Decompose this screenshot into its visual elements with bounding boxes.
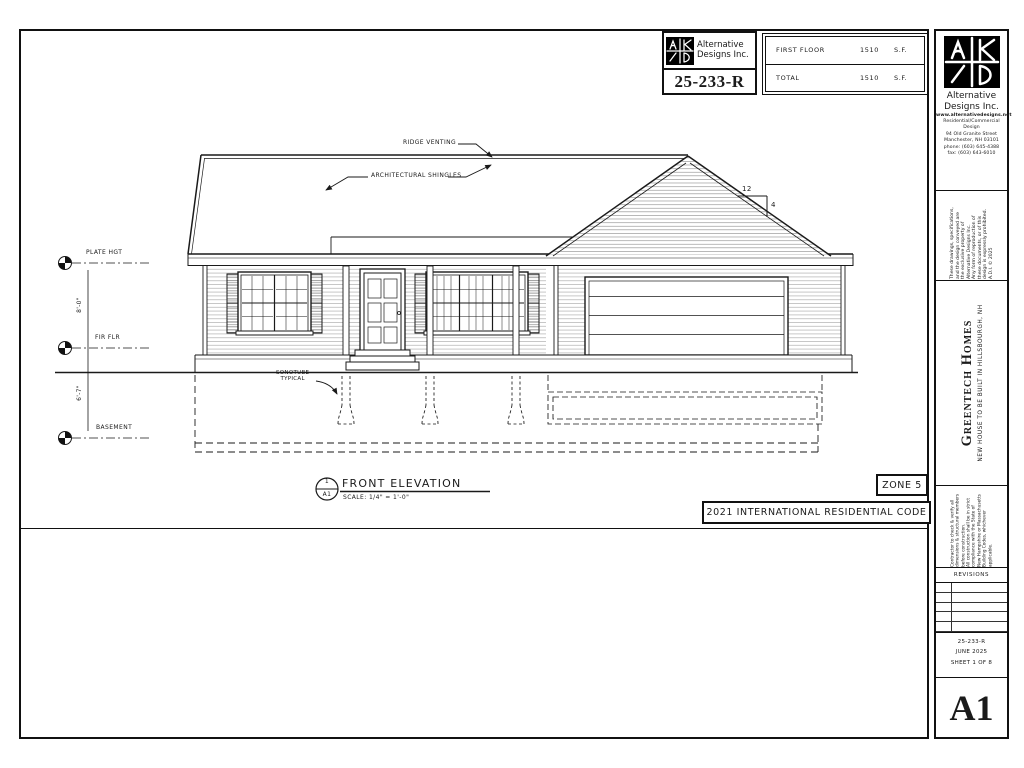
sidebar-firm-name-2: Designs Inc. — [936, 102, 1007, 113]
copyright-line: Alternative Designs Inc. — [966, 193, 972, 279]
area-row-unit: S.F. — [894, 74, 914, 82]
revision-row — [936, 603, 1007, 613]
revisions-table — [936, 583, 1007, 633]
area-row-label: FIRST FLOOR — [776, 46, 860, 54]
title-block-firm: Alternative Designs Inc. 25-233-R — [662, 31, 757, 95]
ridge-venting-label: RIDGE VENTING — [403, 139, 456, 146]
door-steps — [346, 350, 419, 370]
building-code-box: 2021 INTERNATIONAL RESIDENTIAL CODE — [702, 501, 931, 524]
project-description: NEW HOUSE TO BE BUILT IN HILLSBOURGH, NH — [977, 282, 983, 484]
project-identity: Greentech Homes NEW HOUSE TO BE BUILT IN… — [960, 282, 984, 484]
revisions-table-divider — [951, 583, 952, 632]
sidebar-firm-name-1: Alternative — [936, 91, 1007, 102]
sheet-project-number: 25-233-R — [936, 637, 1007, 647]
title-block-firm-name-2: Designs Inc. — [697, 51, 749, 60]
sonotube-label: SONOTUBE TYPICAL — [276, 370, 309, 383]
front-door — [360, 269, 405, 352]
area-table-row-total: TOTAL 1510 S.F. — [766, 65, 924, 92]
area-row-unit: S.F. — [894, 46, 914, 54]
revision-row — [936, 593, 1007, 603]
left-window — [227, 272, 322, 335]
copyright-line: and the design conveyed are — [955, 193, 961, 279]
revision-row — [936, 622, 1007, 632]
contractor-note-line: dimensions & structural members — [955, 487, 960, 567]
area-table-inner: FIRST FLOOR 1510 S.F. TOTAL 1510 S.F. — [765, 36, 925, 92]
foundation-dashed — [195, 375, 822, 452]
drawing-title: FRONT ELEVATION — [342, 477, 461, 490]
architectural-shingles-label: ARCHITECTURAL SHINGLES — [371, 172, 461, 179]
area-table-row-first-floor: FIRST FLOOR 1510 S.F. — [766, 37, 924, 65]
drawing-scale: SCALE: 1/4" = 1'-0" — [343, 494, 409, 501]
dim-floor-to-basement: 6'-7" — [55, 369, 103, 417]
title-block-project-number: 25-233-R — [664, 70, 755, 93]
copyright-line: these documents, or of this — [977, 193, 983, 279]
sidebar-title-strip: Alternative Designs Inc. www.alternative… — [934, 29, 1009, 739]
sidebar-firm-section: Alternative Designs Inc. www.alternative… — [936, 31, 1007, 191]
sidebar-project-section: Greentech Homes NEW HOUSE TO BE BUILT IN… — [936, 281, 1007, 486]
area-table: FIRST FLOOR 1510 S.F. TOTAL 1510 S.F. — [762, 33, 928, 95]
sheet-id: A1 — [936, 678, 1007, 737]
basement-datum-label: BASEMENT — [96, 424, 132, 431]
firm-logo-icon — [944, 36, 1000, 88]
zone-box: ZONE 5 — [876, 474, 928, 496]
contractor-note-text: Contractor to check & verify all dimensi… — [950, 487, 993, 567]
copyright-line: Any form of reproduction of — [972, 193, 978, 279]
title-block-firm-row: Alternative Designs Inc. — [664, 33, 755, 70]
sheet-number-label: SHEET 1 OF 8 — [936, 658, 1007, 668]
slope-run-label: 12 — [742, 185, 752, 193]
plate-height-datum-label: PLATE HGT — [86, 249, 122, 256]
revision-row — [936, 583, 1007, 593]
porch-window — [415, 272, 539, 335]
sidebar-firm-address-2: Manchester, NH 03101 — [936, 138, 1007, 144]
front-elevation-linework — [0, 0, 1024, 768]
revision-row — [936, 612, 1007, 622]
contractor-note-line: New Hampshire or Massachusetts — [977, 487, 982, 567]
dim-plate-to-floor: 8'-0" — [55, 281, 103, 329]
detail-number: 1 — [321, 478, 333, 485]
detail-sheet-ref: A1 — [319, 491, 335, 498]
copyright-line: A.D.I. © 2025 — [988, 193, 994, 279]
area-row-label: TOTAL — [776, 74, 860, 82]
firm-logo-icon — [666, 37, 694, 65]
garage-gable — [546, 156, 831, 256]
contractor-note-line: before construction. — [961, 487, 966, 567]
copyright-line: design is expressly prohibited. — [983, 193, 989, 279]
client-name: Greentech Homes — [960, 282, 976, 484]
area-row-value: 1510 — [860, 46, 894, 54]
first-floor-datum-label: FIR FLR — [95, 334, 120, 341]
copyright-text: These drawings, specifications, and the … — [950, 193, 994, 279]
revisions-header: REVISIONS — [936, 568, 1007, 583]
sidebar-firm-fax: fax: (603) 643-6010 — [936, 151, 1007, 157]
area-row-value: 1510 — [860, 74, 894, 82]
contractor-note-line: Building Codes, whichever applicable. — [982, 487, 993, 567]
contractor-note-line: compliance with the State of — [972, 487, 977, 567]
sheet-date: JUNE 2025 — [936, 647, 1007, 657]
garage-door — [585, 277, 788, 355]
copyright-line: the exclusive property of — [961, 193, 967, 279]
blueprint-sheet: RIDGE VENTING ARCHITECTURAL SHINGLES 12 … — [0, 0, 1024, 768]
copyright-line: These drawings, specifications, — [950, 193, 956, 279]
sidebar-contractor-note-section: Contractor to check & verify all dimensi… — [936, 486, 1007, 568]
sheet-info-block: 25-233-R JUNE 2025 SHEET 1 OF 8 — [936, 633, 1007, 678]
sidebar-copyright-section: These drawings, specifications, and the … — [936, 191, 1007, 281]
slope-rise-label: 4 — [771, 201, 776, 209]
